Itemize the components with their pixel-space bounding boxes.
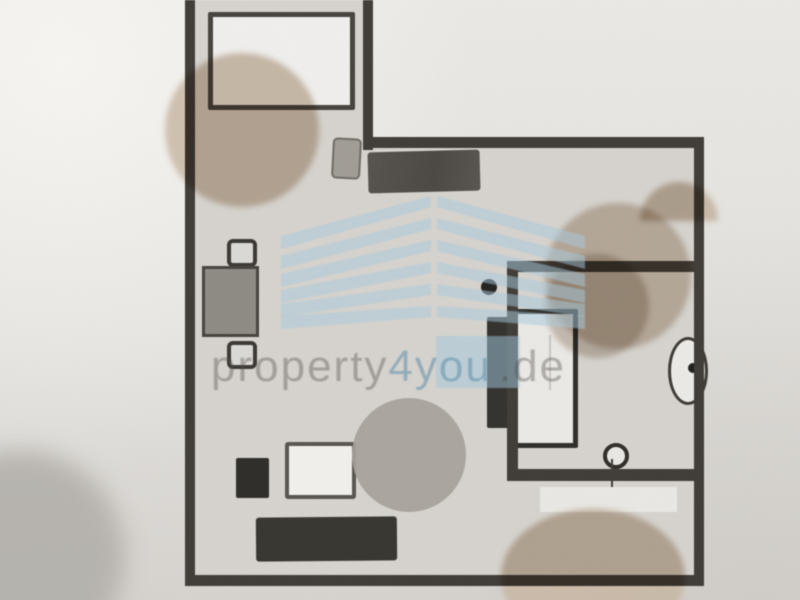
striped-roof-logo-icon bbox=[0, 0, 800, 600]
watermark-prefix: property bbox=[211, 342, 388, 391]
floorplan-photo: property4you.de bbox=[0, 0, 800, 600]
watermark-suffix: .de bbox=[499, 342, 566, 391]
watermark: property4you.de bbox=[0, 0, 800, 600]
watermark-number: 4 bbox=[388, 342, 414, 391]
watermark-text: property4you.de bbox=[211, 342, 566, 392]
watermark-highlight: you bbox=[415, 342, 492, 391]
